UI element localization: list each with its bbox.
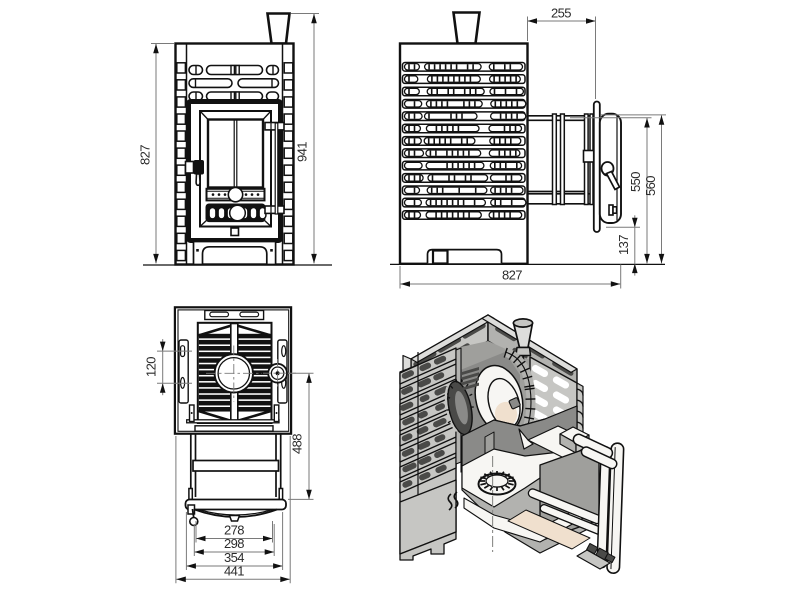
svg-text:441: 441 <box>224 563 244 578</box>
svg-text:298: 298 <box>224 536 244 551</box>
svg-text:120: 120 <box>144 357 159 377</box>
svg-text:255: 255 <box>551 6 571 21</box>
svg-text:137: 137 <box>616 235 631 255</box>
svg-text:550: 550 <box>628 172 643 192</box>
svg-text:941: 941 <box>295 142 310 162</box>
svg-text:488: 488 <box>290 434 305 454</box>
svg-text:827: 827 <box>138 145 153 165</box>
svg-text:827: 827 <box>502 268 522 283</box>
svg-text:560: 560 <box>643 176 658 196</box>
